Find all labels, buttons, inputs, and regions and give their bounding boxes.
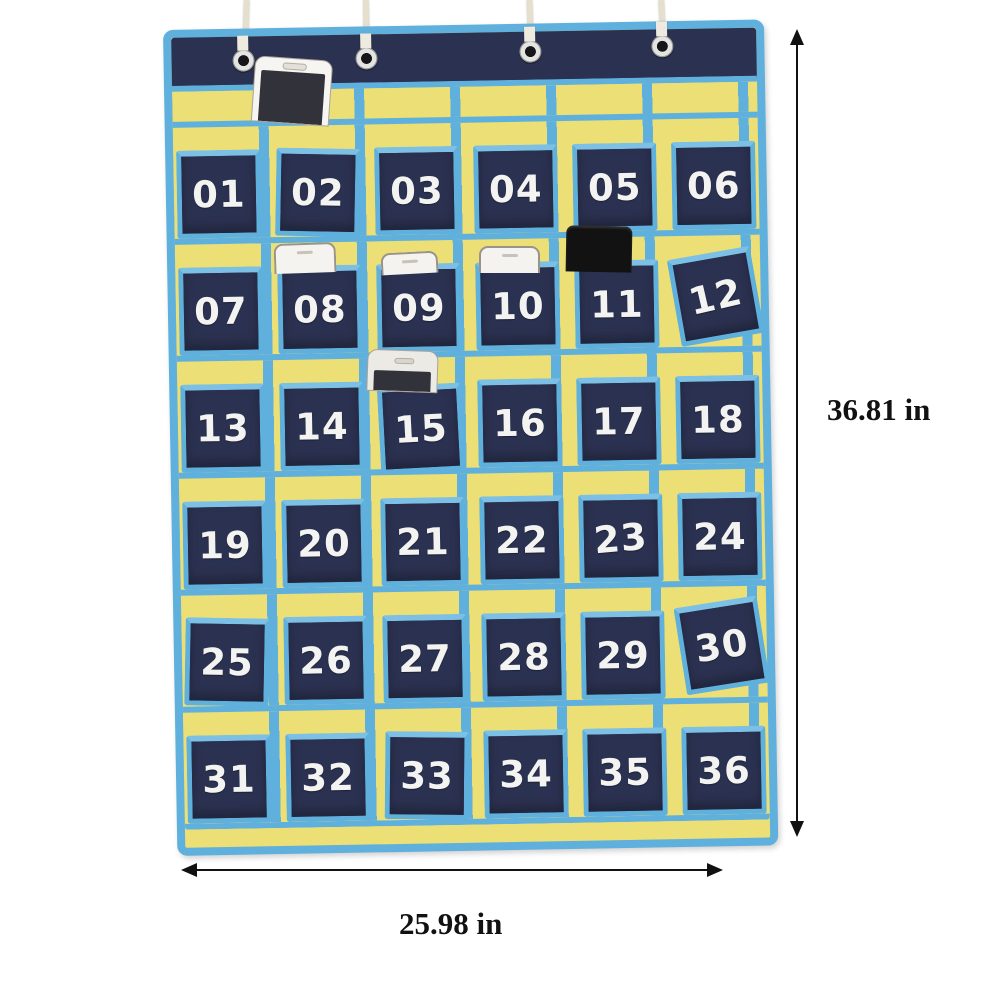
pocket-28: 28 [481,612,567,701]
pocket-number: 08 [293,291,347,329]
height-dimension-line [796,42,798,824]
silver-phone [366,349,438,393]
pocket-16: 16 [477,378,563,467]
white-phone [380,251,438,276]
pocket-row: 070809101112 [175,235,762,362]
pocket-31: 31 [186,734,272,823]
black-phone [566,225,633,272]
pocket-21: 21 [380,497,466,586]
white-phone [479,246,540,273]
pocket-number: 32 [301,759,355,797]
pocket-15: 15 [377,382,465,474]
pocket-number: 28 [497,638,551,676]
pocket-25: 25 [184,617,270,706]
pocket-number: 03 [390,172,444,210]
arrow-up-icon [790,29,804,45]
pocket-10: 10 [475,261,561,350]
pocket-number: 34 [499,755,553,793]
white-phone [251,55,333,126]
pocket-number: 21 [396,523,450,561]
grommet [651,35,673,57]
pocket-number: 30 [693,623,752,668]
pocket-rows: 0102030405060708091011121314151617181920… [173,118,770,830]
pocket-32: 32 [285,733,371,822]
grommet [232,49,254,71]
grommet [355,47,377,69]
pocket-26: 26 [283,616,369,705]
phone-screen [258,70,325,125]
pocket-number: 33 [400,757,454,794]
pocket-number: 09 [392,289,446,327]
pocket-number: 29 [596,637,650,675]
arrow-right-icon [707,863,723,877]
pocket-09: 09 [376,263,462,352]
phone-screen [373,370,431,392]
pocket-13: 13 [180,383,266,472]
pocket-number: 06 [687,167,741,205]
pocket-number: 36 [697,752,751,790]
pocket-number: 04 [489,170,543,208]
pocket-number: 25 [200,644,254,682]
pocket-12: 12 [667,246,765,347]
pocket-11: 11 [574,259,660,348]
width-dimension-line [195,869,709,871]
pocket-number: 15 [393,409,448,449]
pocket-14: 14 [279,382,365,471]
white-phone [273,242,336,274]
pocket-number: 13 [196,410,250,448]
pocket-number: 02 [291,174,345,212]
pocket-number: 11 [590,286,644,324]
pocket-33: 33 [385,731,470,820]
pocket-29: 29 [580,610,666,699]
arrow-down-icon [790,821,804,837]
pocket-row: 313233343536 [183,703,770,830]
pocket-18: 18 [675,375,761,464]
pocket-05: 05 [572,142,658,231]
pocket-19: 19 [182,500,268,589]
arrow-left-icon [181,863,197,877]
pocket-row: 131415161718 [177,352,764,479]
pocket-20: 20 [281,499,367,588]
pocket-08: 08 [277,265,363,354]
pocket-24: 24 [677,492,763,581]
pocket-number: 17 [592,403,646,441]
height-dimension-label: 36.81 in [827,392,930,428]
pocket-number: 18 [691,401,745,439]
pocket-number: 05 [588,169,642,207]
width-dimension-label: 25.98 in [399,906,502,942]
pocket-35: 35 [582,727,668,816]
pocket-27: 27 [382,614,468,703]
pocket-07: 07 [178,266,264,355]
pocket-17: 17 [576,376,662,465]
pocket-number: 10 [491,287,545,325]
pocket-number: 27 [398,640,452,678]
pocket-23: 23 [578,493,664,582]
pocket-chart-organizer: 0102030405060708091011121314151617181920… [163,20,778,856]
pocket-number: 12 [686,273,746,321]
grommet [519,40,541,62]
pocket-row: 252627282930 [181,586,768,713]
pocket-30: 30 [673,595,770,695]
pocket-02: 02 [275,148,361,237]
pocket-number: 35 [598,754,652,792]
pocket-01: 01 [176,149,262,238]
pocket-row: 192021222324 [179,469,766,596]
pocket-03: 03 [374,146,460,235]
pocket-22: 22 [479,495,565,584]
pocket-number: 16 [493,404,547,442]
pocket-34: 34 [483,729,569,818]
pocket-number: 20 [297,525,351,563]
pocket-36: 36 [681,726,767,815]
pocket-row: 010203040506 [173,118,760,245]
pocket-number: 14 [295,408,349,446]
pocket-06: 06 [671,141,757,230]
pocket-number: 23 [593,518,650,560]
pocket-04: 04 [473,144,559,233]
pocket-number: 01 [192,176,246,214]
pocket-number: 24 [693,518,747,556]
pocket-number: 07 [194,293,248,331]
product-photo: 0102030405060708091011121314151617181920… [0,0,1001,1001]
pocket-number: 22 [495,521,549,559]
pocket-number: 19 [198,527,252,565]
pocket-number: 31 [202,760,256,798]
pocket-number: 26 [299,642,353,680]
